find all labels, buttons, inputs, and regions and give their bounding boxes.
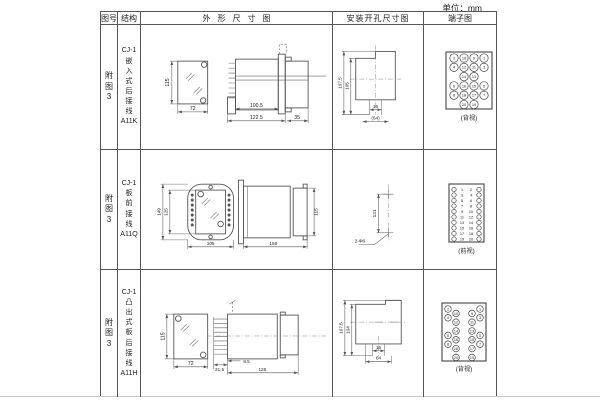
install-drawing-a11k: 107.5 105 16 (64) [333, 25, 423, 150]
svg-text:14: 14 [462, 75, 466, 79]
svg-text:15: 15 [460, 226, 464, 230]
svg-text:9: 9 [471, 312, 473, 316]
dim-label: 131 [372, 209, 377, 217]
svg-text:17: 17 [460, 232, 464, 236]
svg-text:3: 3 [479, 316, 481, 320]
svg-text:6: 6 [447, 334, 449, 338]
svg-text:8: 8 [470, 204, 472, 208]
hole-label: 2-Φ6 [355, 238, 366, 243]
row1-fig-no: 附 图 3 [101, 25, 118, 150]
svg-text:17: 17 [472, 93, 476, 97]
svg-text:3: 3 [461, 193, 463, 197]
svg-text:3: 3 [483, 65, 485, 69]
svg-text:4: 4 [470, 193, 472, 197]
svg-text:18: 18 [469, 232, 473, 236]
svg-text:17: 17 [470, 347, 474, 351]
svg-text:9: 9 [461, 210, 463, 214]
svg-text:2: 2 [453, 56, 455, 60]
dim-label: 64 [376, 356, 382, 361]
svg-text:10: 10 [462, 56, 466, 60]
dim-label: 122.5 [250, 114, 263, 120]
row1-install-cell: 107.5 105 16 (64) [333, 25, 424, 150]
dim-label: 126 [258, 367, 266, 372]
svg-text:5: 5 [483, 84, 485, 88]
header-install-label: 安装开孔尺寸图 [347, 13, 410, 24]
svg-text:4: 4 [447, 316, 449, 320]
svg-text:10: 10 [469, 210, 473, 214]
dimension-table: 图号 结构 外形尺寸图 安装开孔尺寸图 端子图 附 图 3 CJ-1 嵌 入 式… [100, 11, 497, 396]
row3-terminal-cell: 2109141211314136161558181772019 (背视) [424, 270, 496, 397]
terminal-diagram-a11h: 2109141211314136161558181772019 (背视) [424, 270, 496, 397]
svg-text:6: 6 [453, 84, 455, 88]
svg-text:2: 2 [447, 307, 449, 311]
header-outline-label: 外形尺寸图 [196, 13, 278, 24]
row2-install-cell: 131 2-Φ6 [333, 150, 424, 270]
svg-text:16: 16 [462, 84, 466, 88]
dim-label: 149 [156, 207, 161, 215]
row2-outline-cell: 149 125 105 156 [141, 150, 333, 270]
svg-text:1: 1 [479, 307, 481, 311]
terminal-circles: 2109141211314136161558181772019 [445, 306, 484, 361]
front-view: 115 72 [160, 314, 207, 369]
dim-label: 100.5 [250, 102, 263, 108]
dim-label: 104 [345, 326, 350, 334]
svg-text:10: 10 [454, 312, 458, 316]
terminal-diagram-a11k: 2109141211314136161558181772019 (背视) [424, 25, 496, 150]
outline-drawing-a11k: 115 72 1 [141, 25, 332, 150]
side-view: 156 115 [238, 180, 318, 249]
dim-label: 115 [314, 207, 319, 215]
terminal-circles: 2109141211314136161558181772019 [450, 53, 488, 108]
dim-label: 72 [190, 105, 196, 111]
dim-label: (64) [371, 115, 380, 120]
side-view: 100.5 122.5 35 [228, 44, 326, 123]
front-view: 149 125 105 [156, 184, 233, 249]
svg-text:11: 11 [470, 321, 474, 325]
svg-text:15: 15 [472, 84, 476, 88]
row3-fig-no: 附 图 3 [101, 270, 118, 397]
svg-text:6: 6 [470, 199, 472, 203]
svg-text:7: 7 [461, 204, 463, 208]
header-fig-no-label: 图号 [101, 13, 117, 24]
svg-text:11: 11 [460, 215, 464, 219]
svg-text:13: 13 [460, 221, 464, 225]
svg-text:13: 13 [470, 329, 474, 333]
dim-label: 31.5 [215, 367, 224, 372]
row1-structure: CJ-1 嵌 入 式 后 接 线 A11K [118, 25, 141, 150]
header-outline: 外形尺寸图 [141, 12, 333, 25]
header-fig-no: 图号 [101, 12, 118, 25]
dim-label: 115 [160, 332, 166, 340]
svg-text:7: 7 [479, 343, 481, 347]
terminal-caption: (前视) [458, 247, 475, 255]
svg-text:13: 13 [472, 75, 476, 79]
svg-text:18: 18 [454, 347, 458, 351]
terminal-caption: (背视) [456, 365, 473, 373]
svg-text:15: 15 [470, 338, 474, 342]
outline-drawing-a11q: 149 125 105 156 [141, 150, 332, 270]
dim-label: 35 [294, 114, 300, 120]
svg-text:9: 9 [473, 56, 475, 60]
install-drawing-a11h: 107.5 104 16 64 [333, 270, 423, 397]
dim-label: 16 [373, 103, 379, 108]
svg-text:18: 18 [462, 93, 466, 97]
dim-label: 107.5 [337, 76, 342, 88]
dim-label: 72 [188, 361, 194, 367]
svg-text:12: 12 [454, 321, 458, 325]
svg-text:14: 14 [469, 221, 473, 225]
svg-text:16: 16 [469, 226, 473, 230]
terminal-circles: 1234567891011121314151617181920 [452, 187, 481, 241]
row2-terminal-cell: 1234567891011121314151617181920 (前视) [424, 150, 496, 270]
svg-text:19: 19 [472, 102, 476, 106]
svg-text:14: 14 [454, 329, 458, 333]
row2-structure: CJ-1 板 前 接 线 A11Q [118, 150, 141, 270]
dim-label: 125 [163, 207, 168, 215]
svg-text:4: 4 [453, 65, 455, 69]
dim-label: 105 [207, 240, 215, 245]
svg-text:1: 1 [461, 188, 463, 192]
svg-text:20: 20 [469, 237, 473, 241]
outline-drawing-a11h: 115 72 9.5 [141, 270, 332, 397]
row1-terminal-cell: 2109141211314136161558181772019 (背视) [424, 25, 496, 150]
datasheet-page: 单位：mm 图号 结构 外形尺寸图 安装开孔尺寸图 端子图 附 图 3 CJ-1… [0, 0, 600, 400]
svg-text:20: 20 [454, 356, 458, 360]
svg-text:2: 2 [470, 188, 472, 192]
terminal-caption: (背视) [461, 114, 478, 122]
side-view: 9.5 31.5 126 [207, 300, 326, 375]
header-terminal: 端子图 [424, 12, 496, 25]
front-view: 115 72 [165, 61, 208, 114]
svg-text:19: 19 [470, 356, 474, 360]
row3-outline-cell: 115 72 9.5 [141, 270, 333, 397]
header-install: 安装开孔尺寸图 [333, 12, 424, 25]
svg-text:7: 7 [483, 93, 485, 97]
dim-label: 9.5 [243, 359, 250, 364]
dim-label: 105 [344, 81, 349, 89]
svg-text:8: 8 [453, 93, 455, 97]
svg-text:12: 12 [462, 65, 466, 69]
install-drawing-a11q: 131 2-Φ6 [333, 150, 423, 270]
row1-outline-cell: 115 72 1 [141, 25, 333, 150]
svg-text:11: 11 [472, 65, 476, 69]
dim-label: 156 [269, 240, 277, 245]
terminal-diagram-a11q: 1234567891011121314151617181920 (前视) [424, 150, 496, 270]
row3-structure: CJ-1 凸 出 式 板 后 接 线 A11H [118, 270, 141, 397]
dim-label: 115 [165, 78, 171, 86]
svg-text:5: 5 [479, 334, 481, 338]
dim-label: 16 [376, 345, 382, 350]
header-structure: 结构 [118, 12, 141, 25]
svg-text:8: 8 [447, 343, 449, 347]
svg-text:20: 20 [462, 102, 466, 106]
svg-text:16: 16 [454, 338, 458, 342]
svg-text:1: 1 [483, 56, 485, 60]
row3-install-cell: 107.5 104 16 64 [333, 270, 424, 397]
header-structure-label: 结构 [121, 13, 137, 24]
svg-text:12: 12 [469, 215, 473, 219]
dim-label: 107.5 [338, 322, 343, 334]
row2-fig-no: 附 图 3 [101, 150, 118, 270]
svg-text:19: 19 [460, 237, 464, 241]
header-terminal-label: 端子图 [448, 13, 472, 24]
svg-text:5: 5 [461, 199, 463, 203]
